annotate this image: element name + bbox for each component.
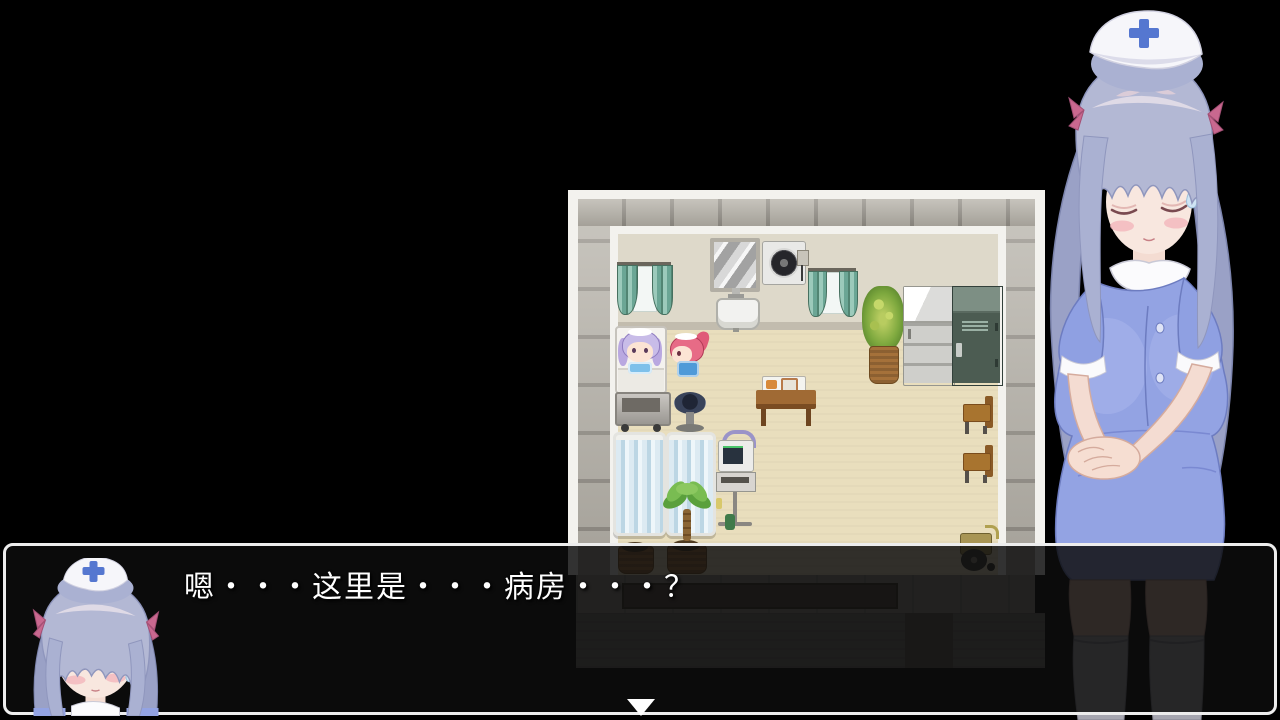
outer-wall-top bbox=[578, 199, 1035, 226]
wooden-chair-2-icon bbox=[961, 445, 995, 483]
map-outer-trim-left bbox=[568, 190, 578, 575]
privacy-screen-1-icon bbox=[613, 432, 666, 536]
window-curtains-left-icon bbox=[617, 260, 671, 316]
mirror-icon bbox=[710, 238, 760, 292]
dialogue-box[interactable]: 嗯・・・这里是・・・病房・・・？ bbox=[3, 543, 1277, 715]
wall-sink-icon bbox=[714, 288, 758, 332]
round-stool-icon bbox=[672, 392, 708, 432]
tall-potted-plant-icon bbox=[860, 286, 906, 386]
map-outer-trim-top bbox=[568, 190, 1045, 199]
medical-monitor-stand-icon bbox=[714, 430, 756, 542]
room-trim-top bbox=[610, 226, 1006, 234]
green-locker-icon bbox=[952, 286, 1003, 386]
maid-pink-character bbox=[668, 331, 710, 379]
game-screen: 嗯・・・这里是・・・病房・・・？ bbox=[0, 0, 1280, 720]
palm-plant-icon bbox=[660, 485, 716, 547]
refrigerator-icon bbox=[903, 286, 955, 386]
outer-wall-left bbox=[578, 226, 610, 575]
fan-cord bbox=[801, 265, 803, 281]
maid-purple-character bbox=[618, 328, 662, 378]
window-curtains-right-icon bbox=[808, 266, 856, 318]
dialogue-text: 嗯・・・这里是・・・病房・・・？ bbox=[184, 562, 696, 606]
meal-table-with-tray-icon bbox=[756, 382, 816, 428]
outer-wall-right bbox=[1006, 226, 1035, 575]
wooden-chair-1-icon bbox=[961, 396, 995, 434]
continue-arrow-icon[interactable] bbox=[627, 699, 655, 716]
wall-outlet-icon bbox=[797, 250, 809, 266]
nurse-portrait bbox=[26, 558, 166, 716]
